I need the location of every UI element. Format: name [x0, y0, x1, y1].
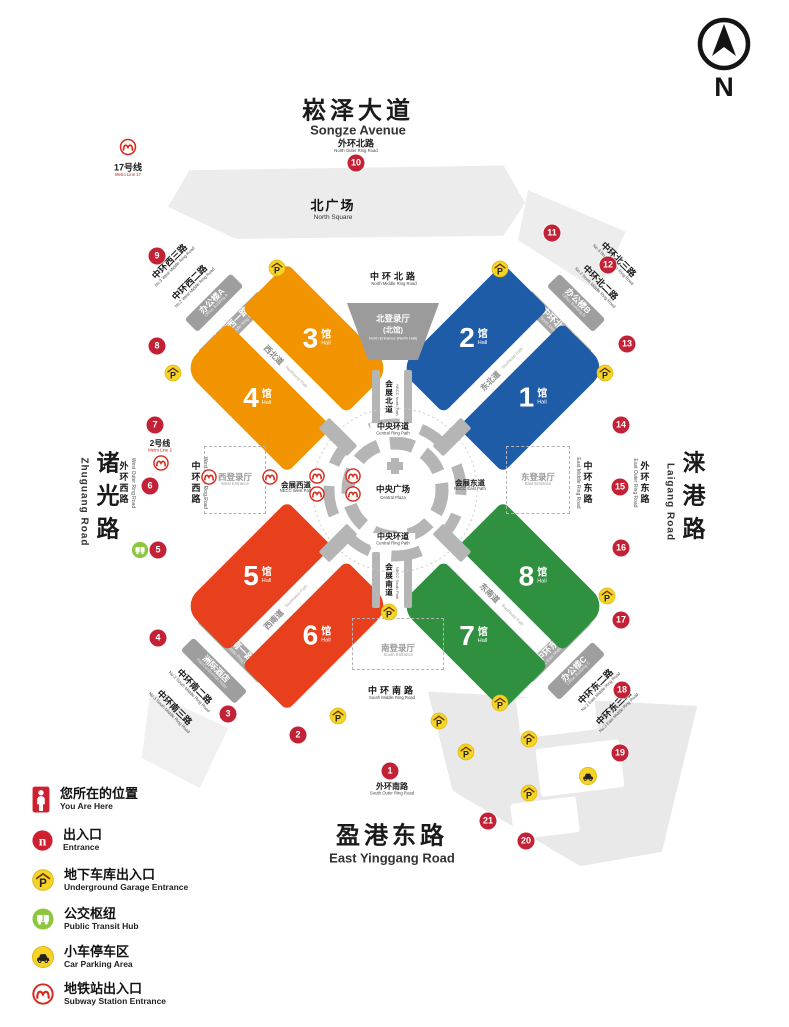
entrance-marker-10: 10	[348, 155, 365, 172]
metro-station-icon	[309, 468, 325, 484]
legend-bus-hub-zh: 公交枢纽	[64, 907, 139, 922]
hall-5-unit-en: Hall	[262, 579, 272, 585]
entrance-marker-17: 17	[613, 612, 630, 629]
street-yinggang-en: East Yinggang Road	[329, 851, 455, 866]
hall-3-unit-en: Hall	[321, 341, 331, 347]
entrance-north-label: 北登录厅 (北馆) North Entrance (North Hall)	[363, 313, 424, 342]
street-songze-en: Songze Avenue	[310, 123, 406, 138]
hall-6-number: 6	[302, 622, 318, 650]
legend-car-parking-zh: 小车停车区	[64, 945, 133, 960]
legend-car-parking: 小车停车区Car Parking Area	[32, 945, 133, 969]
road-middle-north-en: North Middle Ring Road	[371, 282, 416, 286]
central-ring-bottom-en: Central Ring Path	[376, 542, 410, 546]
entrance-east-en: East Entrance	[524, 482, 553, 487]
metro-station-icon	[345, 486, 361, 502]
hall-7-unit-en: Hall	[478, 638, 488, 644]
necc-campus-map: N 崧泽大道 Songze Avenue 17号线 Metro Line 17 …	[0, 0, 789, 1027]
legend-you-are-here-en: You Are Here	[60, 802, 138, 811]
hall-3-number: 3	[302, 324, 318, 352]
garage-entrance-icon	[269, 260, 286, 277]
entrance-marker-5: 5	[150, 542, 167, 559]
hall-8-unit-zh: 馆	[537, 568, 547, 579]
entrance-north-en: North Entrance (North Hall)	[369, 336, 417, 341]
compass-north-label: N	[714, 72, 734, 102]
hall-1-unit-en: Hall	[537, 400, 547, 406]
street-zhuguang-zh: 诸光路	[89, 451, 123, 550]
entrance-marker-16: 16	[613, 540, 630, 557]
legend-car-parking-en: Car Parking Area	[64, 960, 133, 969]
garage-entrance-icon	[521, 731, 538, 748]
entrance-icon	[32, 830, 53, 851]
hall-6-unit-zh: 馆	[321, 627, 331, 638]
legend-garage: 地下车库出入口Underground Garage Entrance	[32, 868, 188, 892]
north-square-en: North Square	[310, 214, 355, 221]
road-middle-south-en: South Middle Ring Road	[369, 696, 415, 700]
garage-entrance-icon	[599, 588, 616, 605]
bus-hub-icon	[32, 908, 54, 930]
hall-8-unit-en: Hall	[537, 579, 547, 585]
garage-entrance-icon	[165, 365, 182, 382]
entrance-north-zh: 北登录厅	[363, 313, 424, 325]
legend-entrance-en: Entrance	[63, 843, 102, 852]
street-zhuguang-en: Zhuguang Road	[79, 457, 90, 546]
car-parking-icon	[579, 767, 597, 785]
road-central-ring-bottom: 中央环道 Central Ring Path	[370, 533, 415, 547]
garage-entrance-icon	[32, 869, 54, 891]
legend-subway-en: Subway Station Entrance	[64, 997, 166, 1006]
hall-1-number: 1	[518, 384, 534, 412]
street-laigang-en: Laigang Road	[665, 463, 676, 541]
hall-8-number: 8	[518, 562, 534, 590]
entrance-marker-12: 12	[600, 257, 617, 274]
garage-entrance-icon	[492, 261, 509, 278]
garage-entrance-icon	[458, 744, 475, 761]
entrance-marker-20: 20	[518, 833, 535, 850]
road-outer-south-en: South Outer Ring Road	[370, 792, 414, 796]
entrance-west-en: West Entrance	[221, 482, 250, 487]
hall-2-number: 2	[459, 324, 475, 352]
entrance-marker-18: 18	[614, 682, 631, 699]
entrance-marker-11: 11	[544, 225, 561, 242]
garage-entrance-icon	[492, 695, 509, 712]
road-middle-north: 中环北路 North Middle Ring Road	[367, 273, 420, 288]
metro-station-icon	[309, 486, 325, 502]
garage-entrance-icon	[597, 365, 614, 382]
central-plaza-zh: 中央广场	[376, 483, 410, 495]
entrance-east-zh: 东登录厅	[521, 473, 555, 482]
hall-5-number: 5	[243, 562, 259, 590]
entrance-north-zh2: (北馆)	[363, 325, 424, 336]
metro-station-icon	[32, 983, 54, 1005]
road-necc-east: 会展东道 NECC East Path	[451, 479, 488, 492]
entrance-marker-4: 4	[150, 630, 167, 647]
road-outer-east-zh: 外环东路	[639, 461, 652, 505]
legend-bus-hub: 公交枢纽Public Transit Hub	[32, 907, 139, 931]
compass-icon: N	[688, 12, 760, 102]
entrance-marker-9: 9	[149, 248, 166, 265]
hall-2-unit-en: Hall	[478, 341, 488, 347]
entrance-marker-2: 2	[290, 727, 307, 744]
entrance-marker-13: 13	[619, 336, 636, 353]
garage-entrance-icon	[381, 604, 398, 621]
street-yinggang-zh: 盈港东路	[336, 816, 448, 851]
entrance-south-en: South Entrance	[383, 653, 412, 658]
north-square-zh: 北广场	[310, 195, 355, 214]
street-songze-zh: 崧泽大道	[302, 91, 414, 126]
car-parking-icon	[32, 946, 54, 968]
entrance-west-zh: 西登录厅	[218, 473, 252, 482]
hall-2-unit-zh: 馆	[478, 330, 488, 341]
north-square-label: 北广场 North Square	[310, 195, 355, 221]
necc-west-en: NECC West Path	[280, 490, 313, 494]
necc-east-en: NECC East Path	[454, 488, 486, 492]
entrance-marker-6: 6	[142, 478, 159, 495]
legend-you-are-here-zh: 您所在的位置	[60, 787, 138, 802]
hall-5-unit-zh: 馆	[262, 568, 272, 579]
metro-line2-label: 2号线 Metro Line 2	[146, 440, 174, 454]
metro-station-icon	[153, 455, 169, 471]
road-outer-west-en: West Outer Ring Road	[130, 458, 136, 508]
garage-entrance-icon	[431, 713, 448, 730]
legend-bus-hub-en: Public Transit Hub	[64, 922, 139, 931]
hall-4-unit-zh: 馆	[262, 389, 272, 400]
legend-entrance-zh: 出入口	[63, 828, 102, 843]
legend-subway-zh: 地铁站出入口	[64, 982, 166, 997]
road-outer-north: 外环北路 North Outer Ring Road	[330, 140, 381, 155]
entrance-marker-1: 1	[382, 763, 399, 780]
road-outer-north-en: North Outer Ring Road	[334, 149, 377, 153]
entrance-marker-19: 19	[612, 745, 629, 762]
metro-station-icon	[120, 139, 137, 156]
hall-7-number: 7	[459, 622, 475, 650]
street-laigang-zh: 涞港路	[675, 451, 709, 550]
you-are-here-icon	[32, 786, 50, 813]
road-outer-south: 外环南路 South Outer Ring Road	[366, 783, 418, 797]
legend-entrance: 出入口Entrance	[32, 828, 102, 852]
entrance-marker-8: 8	[149, 338, 166, 355]
bus-hub-icon	[132, 542, 149, 559]
garage-entrance-icon	[330, 708, 347, 725]
northeast-area	[518, 188, 630, 292]
hall-4-number: 4	[243, 384, 259, 412]
central-plaza-label: 中央广场 Central Plaza	[376, 483, 410, 501]
entrance-marker-14: 14	[613, 417, 630, 434]
legend-garage-en: Underground Garage Entrance	[64, 883, 188, 892]
metro-line17-en: Metro Line 17	[115, 173, 141, 177]
metro-station-icon	[201, 469, 217, 485]
road-middle-east-zh: 中环东路	[582, 461, 595, 505]
entrance-marker-15: 15	[612, 479, 629, 496]
metro-line17-label: 17号线 Metro Line 17	[113, 164, 144, 179]
entrance-east-hall: 东登录厅East Entrance	[506, 446, 570, 514]
legend-you-are-here: 您所在的位置You Are Here	[32, 786, 138, 813]
garage-entrance-icon	[521, 785, 538, 802]
metro-station-icon	[345, 468, 361, 484]
metro-station-icon	[262, 469, 278, 485]
central-ring-top-en: Central Ring Path	[376, 432, 410, 436]
hall-7-unit-zh: 馆	[478, 627, 488, 638]
road-central-ring-top: 中央环道 Central Ring Path	[370, 423, 415, 437]
road-middle-south: 中环南路 South Middle Ring Road	[365, 687, 419, 702]
entrance-south-zh: 南登录厅	[381, 644, 415, 653]
hall-6-unit-en: Hall	[321, 638, 331, 644]
road-outer-east-en: East Outer Ring Road	[632, 459, 638, 508]
metro-line2-en: Metro Line 2	[148, 449, 172, 453]
hall-4-unit-en: Hall	[262, 400, 272, 406]
hall-1-unit-zh: 馆	[537, 389, 547, 400]
legend-garage-zh: 地下车库出入口	[64, 868, 188, 883]
entrance-marker-7: 7	[147, 417, 164, 434]
legend-subway: 地铁站出入口Subway Station Entrance	[32, 982, 166, 1006]
entrance-marker-3: 3	[220, 706, 237, 723]
hall-3-unit-zh: 馆	[321, 330, 331, 341]
entrance-marker-21: 21	[480, 813, 497, 830]
road-middle-east-en: East Middle Ring Road	[575, 457, 581, 508]
central-plaza-en: Central Plaza	[379, 495, 408, 500]
entrance-south-hall: 南登录厅South Entrance	[352, 618, 444, 670]
